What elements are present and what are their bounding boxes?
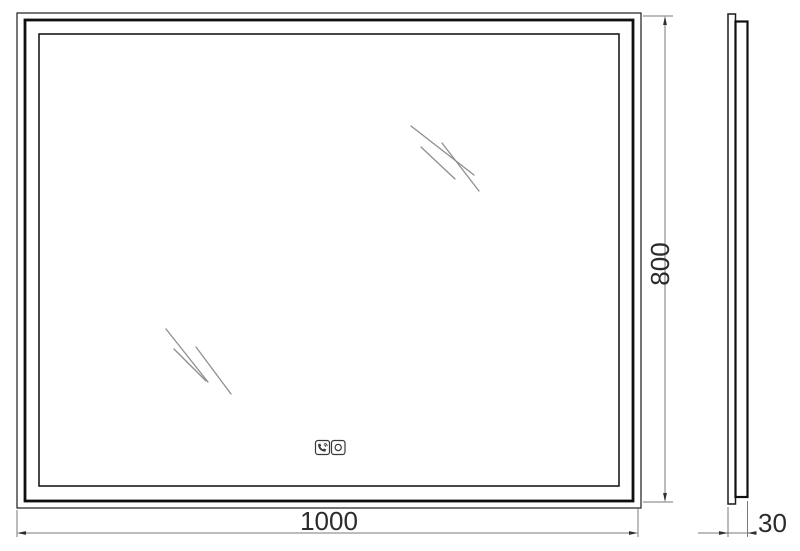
shine-stroke [442, 143, 479, 191]
side-body [736, 22, 748, 498]
front-view [17, 13, 641, 508]
dimension-depth: 30 [698, 501, 787, 538]
shine-stroke [196, 347, 231, 394]
width-dimension-label: 1000 [300, 506, 358, 536]
front-frame [25, 20, 633, 501]
arrow-left-icon [17, 531, 26, 535]
touch-controls [316, 441, 346, 455]
arrow-right-icon [719, 531, 728, 535]
arrow-right-icon [629, 531, 638, 535]
mirror-technical-drawing: 800 1000 30 [0, 0, 800, 551]
dimension-height: 800 [643, 16, 675, 502]
side-view [728, 14, 748, 504]
mirror-shine-icon [411, 126, 479, 191]
arrow-down-icon [663, 493, 667, 502]
arrow-up-icon [663, 16, 667, 25]
drawing-canvas: 800 1000 30 [0, 0, 800, 551]
phone-speaker-button-outline [316, 441, 330, 455]
side-glass-panel [728, 14, 736, 504]
depth-dimension-label: 30 [758, 508, 787, 538]
height-dimension-label: 800 [645, 242, 675, 285]
mirror-shine-icon [166, 329, 231, 394]
front-mirror-inner-edge [39, 34, 619, 486]
arrow-left-icon [748, 531, 757, 535]
shine-stroke [421, 147, 455, 179]
touch-sensor-button-outline [332, 441, 346, 455]
front-outer-edge [17, 13, 641, 508]
dimension-width: 1000 [17, 506, 638, 537]
